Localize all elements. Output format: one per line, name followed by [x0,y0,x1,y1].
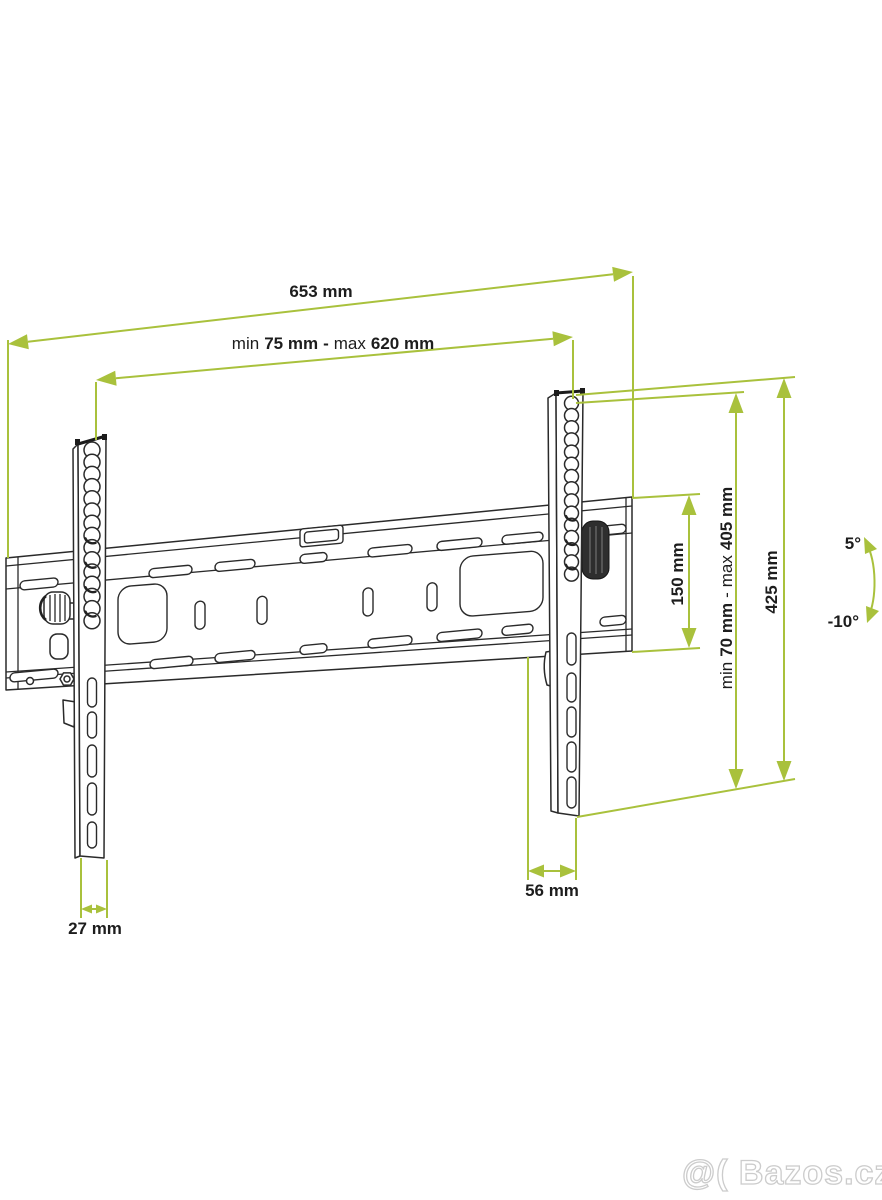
bazos-watermark: @( Bazos.cz [682,1154,882,1192]
right-arm-holes [565,396,579,581]
tilt-lock-tab [50,634,68,659]
right-tension-knob [582,521,609,579]
left-arm-slots [88,678,97,848]
tilt-up-label: 5° [845,534,861,553]
diagram-page: 653 mm min75 mm-max620 mm 150 mm min70 m… [0,0,882,1200]
tv-mount-diagram: 653 mm min75 mm-max620 mm 150 mm min70 m… [0,0,882,1200]
vesa-height-label: min70 mm-max405 mm [717,487,736,689]
tilt-arc [864,537,879,623]
dim-arm-width [81,858,107,918]
arm-height-label: 425 mm [762,550,781,613]
vesa-width-label: min75 mm-max620 mm [232,334,434,353]
depth-label: 56 mm [525,881,579,900]
left-arm-holes [84,442,100,629]
hex-bolt [60,673,74,685]
left-bracket-arm [40,434,107,858]
right-arm-slots [567,633,576,808]
dim-plate-height [632,494,700,652]
tilt-down-label: -10° [828,612,860,631]
total-width-label: 653 mm [289,282,352,301]
level-vial [300,525,343,547]
right-bracket-arm [544,388,585,816]
plate-height-label: 150 mm [668,542,687,605]
arm-width-label: 27 mm [68,919,122,938]
